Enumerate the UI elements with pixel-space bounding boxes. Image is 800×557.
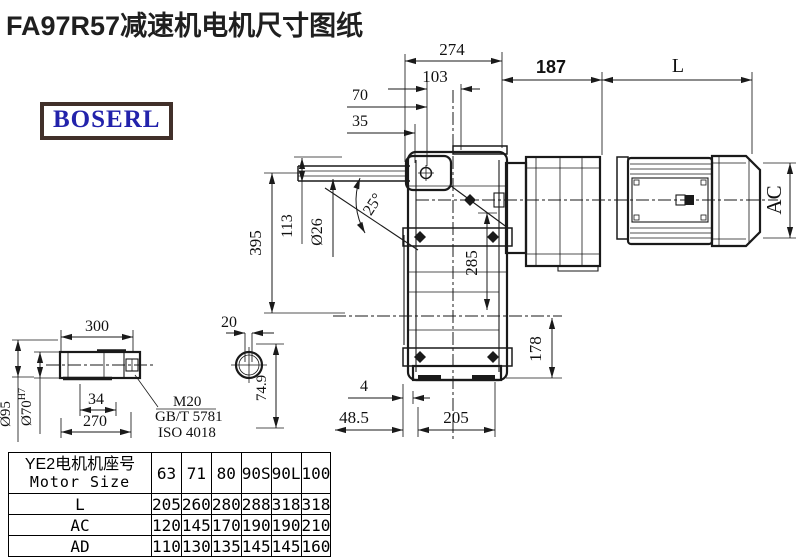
torque-arm — [298, 156, 508, 228]
dim-26-label: Ø26 — [309, 218, 326, 246]
right-dimensions: 178 AC — [506, 163, 796, 378]
dim-L-label: L — [672, 55, 684, 77]
table-header-size: 80 — [211, 453, 241, 494]
table-header-size: 90S — [241, 453, 271, 494]
bottom-dimensions: 4 48.5 205 — [335, 378, 495, 437]
dim-274-label: 274 — [439, 40, 465, 59]
table-cell: 190 — [241, 515, 271, 536]
top-dimensions: 274 103 70 35 187 L — [347, 40, 752, 166]
table-header-row: YE2电机机座号 Motor Size 63 71 80 90S 90L 100 — [9, 453, 331, 494]
dim-48-5-label: 48.5 — [339, 408, 369, 427]
dim-395-label: 395 — [246, 230, 265, 256]
table-cell: 190 — [271, 515, 301, 536]
dim-34-label: 34 — [88, 391, 104, 408]
table-header-size: 100 — [301, 453, 331, 494]
dim-113-label: 113 — [279, 214, 296, 237]
dim-20-label: 20 — [221, 314, 237, 331]
table-cell: 120 — [152, 515, 182, 536]
table-row-AC: AC 120 145 170 190 190 210 — [9, 515, 331, 536]
header-en: Motor Size — [9, 474, 151, 491]
table-cell: 170 — [211, 515, 241, 536]
dim-35-label: 35 — [352, 113, 368, 130]
shaft-detail: 300 Ø95 Ø70H7 34 270 M20 GB/T 5781 ISO 4… — [0, 318, 223, 442]
table-cell: 280 — [211, 494, 241, 515]
centerlines — [46, 90, 778, 440]
bolt-spec-iso: ISO 4018 — [158, 425, 216, 441]
dim-4-label: 4 — [360, 378, 368, 395]
row-label: L — [9, 494, 152, 515]
technical-drawing: 25° — [0, 0, 800, 452]
shaft-cross-section: 20 74.9 — [221, 314, 284, 428]
table-row-L: L 205 260 280 288 318 318 — [9, 494, 331, 515]
table-cell: 260 — [181, 494, 211, 515]
dim-205-label: 205 — [443, 408, 469, 427]
dim-270-label: 270 — [83, 413, 107, 430]
motor — [617, 156, 760, 246]
table-cell: 318 — [271, 494, 301, 515]
table-cell: 210 — [301, 515, 331, 536]
page: { "title": "FA97R57减速机电机尺寸图纸", "logo": "… — [0, 0, 800, 555]
table-cell: 110 — [152, 536, 182, 557]
dim-AC-label: AC — [762, 185, 786, 214]
table-cell: 205 — [152, 494, 182, 515]
dim-74-9-label: 74.9 — [254, 375, 270, 401]
table-header-size: 71 — [181, 453, 211, 494]
header-cn: YE2电机机座号 — [9, 456, 151, 474]
dim-95-label: Ø95 — [0, 401, 14, 427]
dim-300-label: 300 — [85, 318, 109, 335]
table-row-AD: AD 110 130 135 145 145 160 — [9, 536, 331, 557]
r57-stage — [506, 157, 600, 271]
row-label: AD — [9, 536, 152, 557]
table-header-size: 90L — [271, 453, 301, 494]
table-cell: 145 — [241, 536, 271, 557]
dim-285-label: 285 — [462, 250, 481, 276]
table-header-motor-size: YE2电机机座号 Motor Size — [9, 453, 152, 494]
table-cell: 130 — [181, 536, 211, 557]
motor-size-table: YE2电机机座号 Motor Size 63 71 80 90S 90L 100… — [8, 452, 331, 557]
table-cell: 318 — [301, 494, 331, 515]
bolt-spec-m20: M20 — [173, 394, 201, 410]
dim-187-label: 187 — [536, 57, 566, 77]
bolt-spec-gbt: GB/T 5781 — [155, 409, 223, 425]
table-cell: 160 — [301, 536, 331, 557]
dim-70h7-label: Ø70H7 — [17, 388, 35, 426]
table-cell: 145 — [271, 536, 301, 557]
table-cell: 288 — [241, 494, 271, 515]
table-cell: 145 — [181, 515, 211, 536]
dim-178-label: 178 — [526, 336, 545, 362]
table-header-size: 63 — [152, 453, 182, 494]
table-cell: 135 — [211, 536, 241, 557]
row-label: AC — [9, 515, 152, 536]
dim-70-label: 70 — [352, 87, 368, 104]
dim-103-label: 103 — [422, 67, 448, 86]
gearbox-housing — [403, 146, 512, 380]
